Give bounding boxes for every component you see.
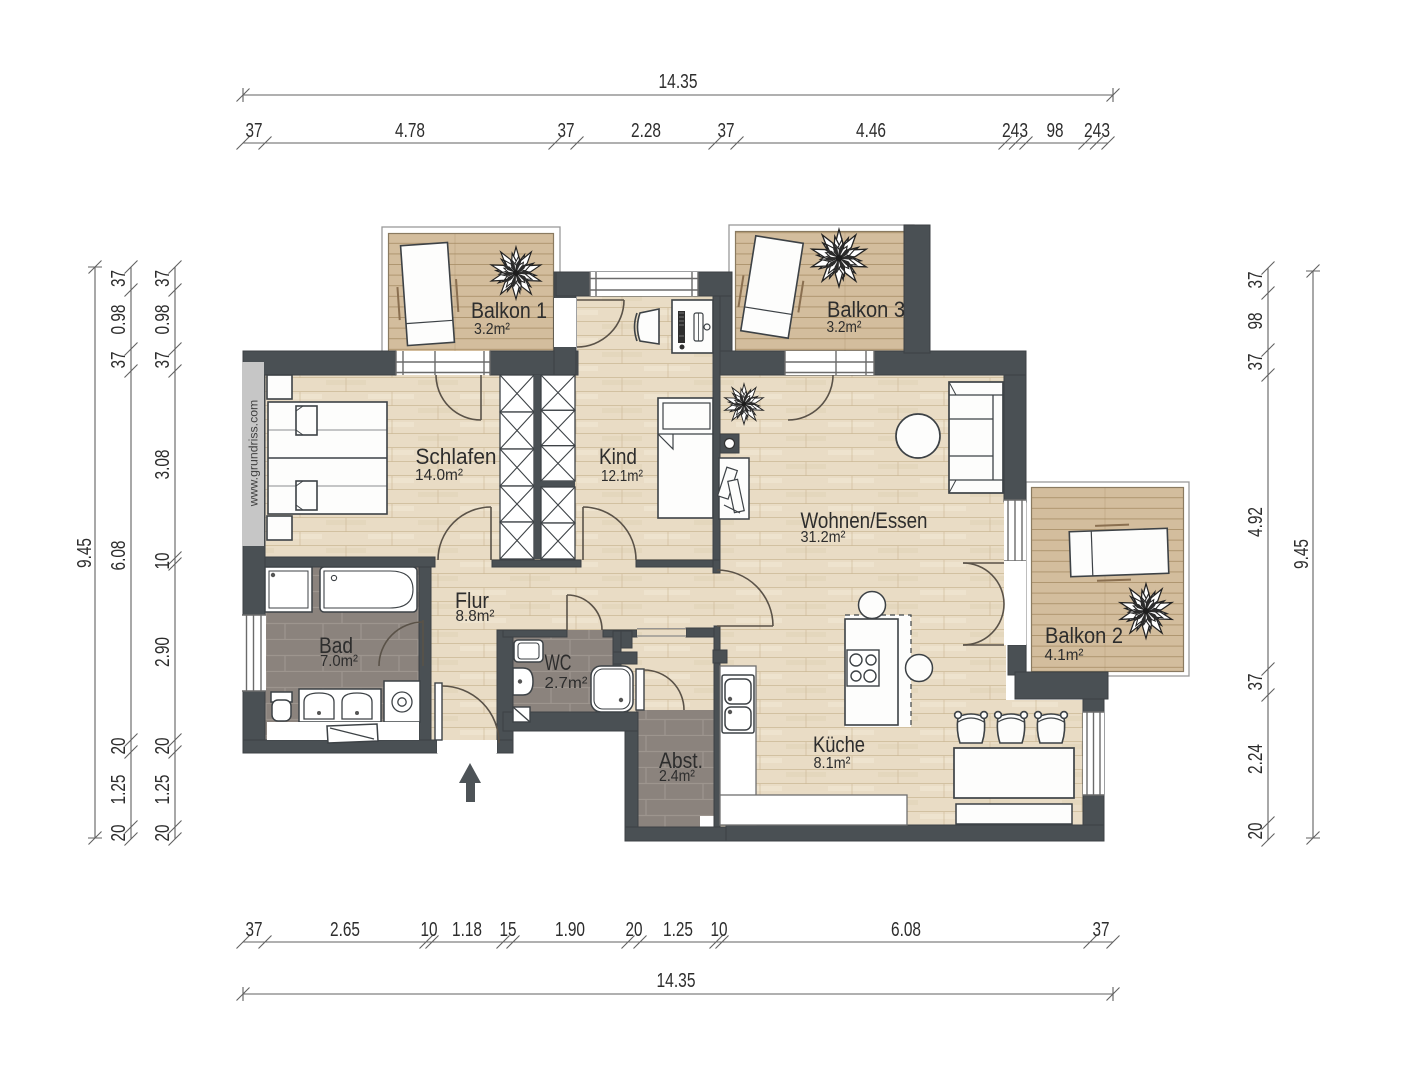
- svg-text:37: 37: [718, 120, 735, 142]
- svg-text:2.65: 2.65: [330, 919, 360, 941]
- svg-text:9.45: 9.45: [74, 538, 96, 568]
- svg-text:37: 37: [152, 352, 174, 369]
- svg-text:37: 37: [558, 120, 575, 142]
- svg-text:6.08: 6.08: [891, 919, 921, 941]
- svg-text:10: 10: [421, 919, 438, 941]
- svg-text:20: 20: [108, 825, 130, 842]
- svg-text:98: 98: [1245, 313, 1267, 330]
- svg-text:1.18: 1.18: [452, 919, 482, 941]
- svg-text:37: 37: [108, 270, 130, 287]
- svg-text:37: 37: [152, 270, 174, 287]
- svg-text:1.90: 1.90: [555, 919, 585, 941]
- svg-text:4.92: 4.92: [1245, 507, 1267, 537]
- svg-text:7.0m²: 7.0m²: [320, 653, 359, 670]
- svg-text:4.1m²: 4.1m²: [1045, 647, 1085, 664]
- svg-text:1.25: 1.25: [663, 919, 693, 941]
- svg-text:Kind: Kind: [599, 444, 637, 469]
- svg-text:1.25: 1.25: [152, 775, 174, 805]
- svg-text:12.1m²: 12.1m²: [601, 468, 644, 485]
- svg-text:2.90: 2.90: [152, 637, 174, 667]
- svg-text:3.2m²: 3.2m²: [827, 319, 863, 336]
- svg-text:243: 243: [1084, 120, 1110, 142]
- svg-text:8.8m²: 8.8m²: [456, 608, 496, 625]
- svg-text:4.78: 4.78: [395, 120, 425, 142]
- svg-text:37: 37: [108, 352, 130, 369]
- svg-text:0.98: 0.98: [108, 305, 130, 335]
- svg-text:20: 20: [626, 919, 643, 941]
- svg-text:WC: WC: [545, 650, 572, 675]
- svg-text:37: 37: [1245, 674, 1267, 691]
- svg-text:31.2m²: 31.2m²: [801, 529, 847, 546]
- svg-text:4.46: 4.46: [856, 120, 886, 142]
- svg-text:37: 37: [246, 919, 263, 941]
- svg-text:3.2m²: 3.2m²: [474, 321, 511, 338]
- svg-text:Balkon 2: Balkon 2: [1045, 623, 1123, 648]
- svg-text:8.1m²: 8.1m²: [814, 755, 852, 772]
- svg-text:10: 10: [152, 553, 174, 570]
- svg-text:15: 15: [500, 919, 517, 941]
- svg-text:Balkon 1: Balkon 1: [471, 298, 547, 323]
- svg-text:Schlafen: Schlafen: [416, 444, 497, 469]
- svg-text:98: 98: [1047, 120, 1064, 142]
- svg-text:2.28: 2.28: [631, 120, 661, 142]
- svg-text:10: 10: [711, 919, 728, 941]
- svg-text:2.24: 2.24: [1245, 744, 1267, 774]
- svg-text:20: 20: [152, 825, 174, 842]
- svg-text:www.grundriss.com: www.grundriss.com: [247, 400, 261, 508]
- svg-text:9.45: 9.45: [1291, 539, 1313, 569]
- svg-text:20: 20: [108, 738, 130, 755]
- svg-text:Küche: Küche: [813, 732, 865, 757]
- svg-text:20: 20: [1245, 823, 1267, 840]
- svg-text:37: 37: [1245, 272, 1267, 289]
- svg-text:14.0m²: 14.0m²: [415, 467, 464, 484]
- svg-text:1.25: 1.25: [108, 775, 130, 805]
- svg-text:0.98: 0.98: [152, 305, 174, 335]
- svg-text:14.35: 14.35: [659, 71, 698, 93]
- svg-text:3.08: 3.08: [152, 450, 174, 480]
- svg-text:37: 37: [1245, 354, 1267, 371]
- svg-text:20: 20: [152, 738, 174, 755]
- svg-text:6.08: 6.08: [108, 541, 130, 571]
- svg-text:14.35: 14.35: [657, 970, 696, 992]
- svg-text:243: 243: [1002, 120, 1028, 142]
- svg-text:2.4m²: 2.4m²: [659, 768, 696, 785]
- svg-text:37: 37: [246, 120, 263, 142]
- svg-text:2.7m²: 2.7m²: [545, 675, 589, 692]
- svg-text:37: 37: [1093, 919, 1110, 941]
